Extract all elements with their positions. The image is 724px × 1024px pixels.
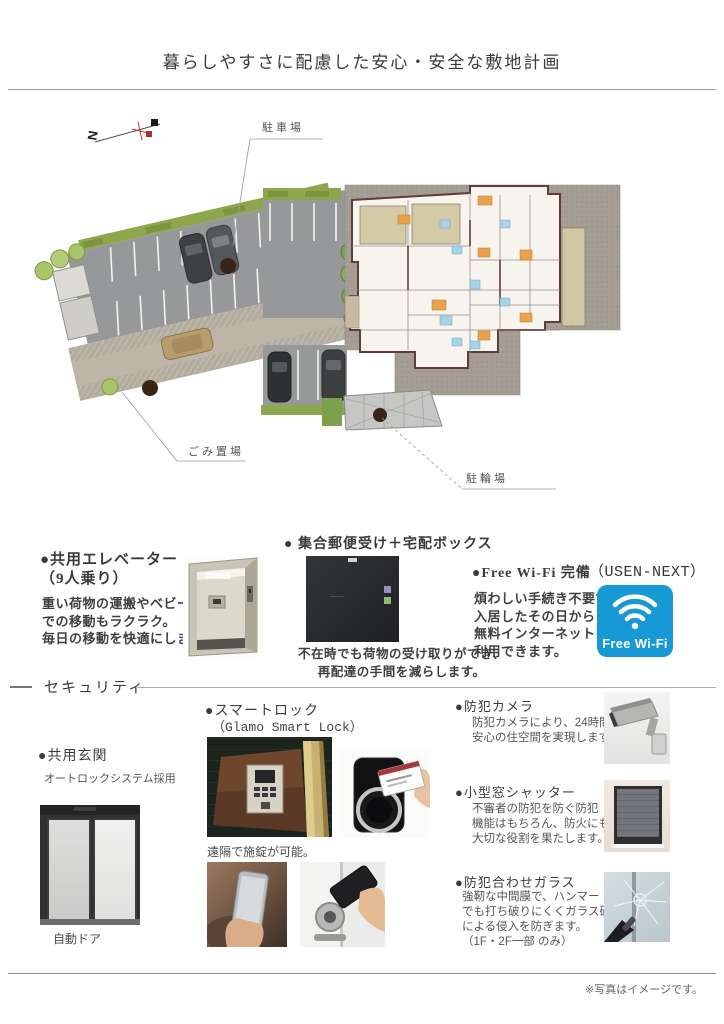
camera-photo [604,692,670,764]
page-title: 暮らしやすさに配慮した安心・安全な敷地計画 [0,48,724,73]
shutter-title: ●小型窓シャッター [455,782,576,801]
intercom-photo [207,737,332,837]
security-dash [10,686,32,688]
mailbox-title: ● 集合郵便受け＋宅配ボックス [284,533,493,553]
entrance-subtitle: オートロックシステム採用 [44,770,176,786]
wifi-logo: Free Wi-Fi [597,585,673,657]
glass-photo [604,872,670,942]
entrance [345,296,359,328]
glass-title: ●防犯合わせガラス [455,872,576,891]
building-floor-plan [345,186,585,368]
shutter-photo [604,780,670,852]
mailbox-photo [306,556,399,642]
bicycle-area [344,390,442,430]
camera-text: 防犯カメラにより、24時間 安心の住空間を実現します。 [472,716,620,746]
flyer-page: 暮らしやすさに配慮した安心・安全な敷地計画 [0,0,724,1024]
lower-parking [261,345,349,426]
shutter-text: 不審者の防犯を防ぐ防犯 機能はもちろん、防火にも 大切な役割を果たします。 [472,802,610,847]
smartlock-caption: 遠隔で施錠が可能。 [207,843,315,860]
entrance-title: ●共用玄関 [38,745,107,765]
compass-icon [95,119,160,142]
entrance-caption: 自動ドア [53,930,101,947]
wifi-logo-text: Free Wi-Fi [602,636,668,651]
parking-label: 駐車場 [262,119,304,135]
auto-door-photo [40,805,140,925]
security-heading: セキュリティ [44,676,145,697]
phone-tap-photo [300,862,385,947]
footer-divider [8,973,716,974]
smartlock-subtitle: （Glamo Smart Lock） [212,716,363,735]
glass-text: 強靭な中間膜で、ハンマー でも打ち破りにくくガラス破り による侵入を防ぎます。 … [462,890,623,950]
elevator-photo [183,556,263,658]
balcony [562,228,585,326]
smartlock-card-photo [338,750,430,838]
wifi-text: 煩わしい手続き不要で 入居したその日から 無料インターネットを 利用できます。 [474,590,609,660]
camera-title: ●防犯カメラ [455,696,534,715]
elevator-title: ●共用エレベーター [40,548,178,569]
wifi-icon [611,591,659,629]
wifi-title: ●Free Wi-Fi 完備 [472,562,591,582]
elevator-subtitle: （9人乗り） [40,567,129,588]
garbage-label: ごみ置場 [188,443,244,459]
security-divider-line [138,687,716,688]
site-plan-drawing [0,100,724,510]
wifi-provider: （USEN-NEXT） [589,560,706,581]
phone-hand-photo [207,862,287,947]
footer-note: ※写真はイメージです。 [585,981,703,997]
title-divider [8,89,716,90]
bicycle-label: 駐輪場 [466,470,508,486]
